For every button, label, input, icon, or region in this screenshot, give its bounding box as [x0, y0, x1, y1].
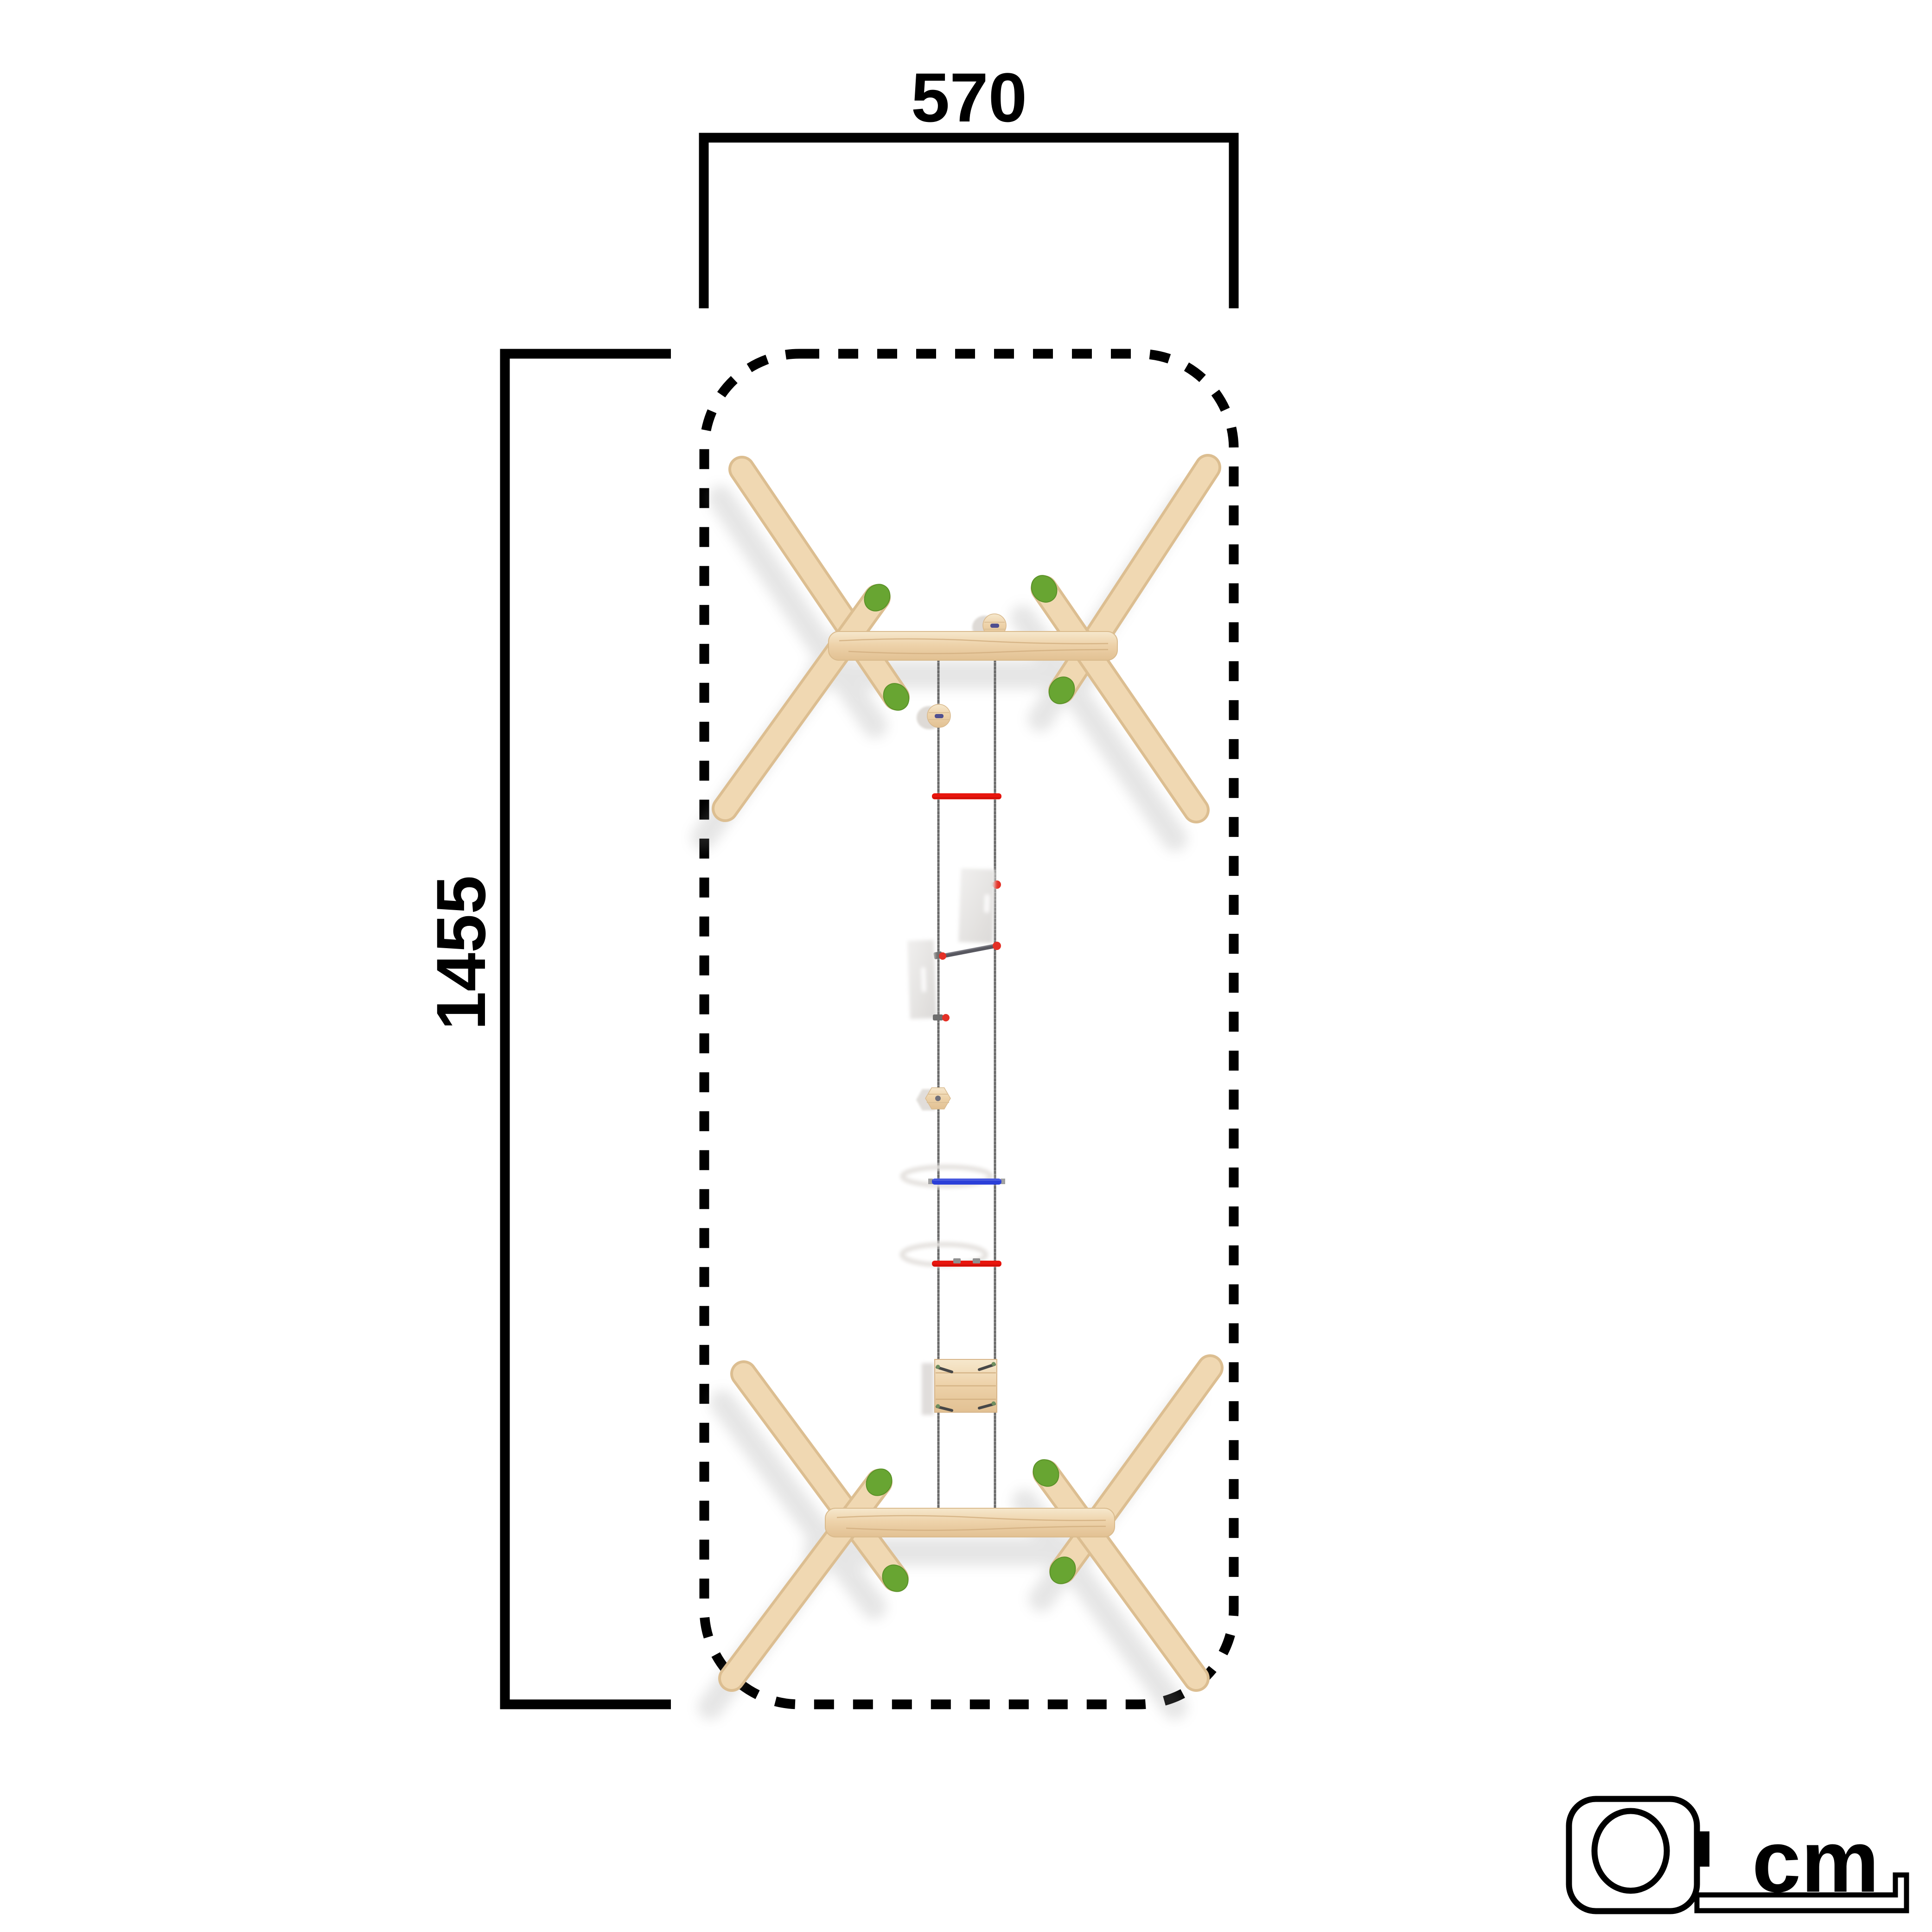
red-rung	[902, 1244, 1001, 1267]
rung-clip	[973, 1258, 980, 1263]
rung-clip	[953, 1258, 961, 1263]
red-rung	[904, 791, 1001, 799]
diagonal-bar	[933, 942, 1001, 960]
rope-elements	[902, 614, 1006, 1415]
rope-connector	[935, 1096, 941, 1101]
blue-rung	[903, 1167, 1005, 1186]
width-dimension-label: 570	[911, 58, 1027, 136]
dimension-drawing-page: 570 1455	[0, 0, 1932, 1932]
rope-connector	[990, 624, 999, 628]
rope-connector	[935, 714, 944, 718]
frame-beam	[829, 631, 1117, 660]
unit-label: cm	[1752, 1812, 1880, 1911]
drawing-canvas: 570 1455	[0, 0, 1932, 1932]
wood-step-disc	[917, 704, 950, 729]
frame-beam	[825, 1508, 1115, 1537]
top-dimension-bracket	[704, 138, 1234, 308]
hex-wood-step	[916, 1088, 950, 1110]
panel-shadow	[958, 868, 995, 943]
left-dimension-bracket	[505, 354, 671, 1704]
height-dimension-label: 1455	[422, 875, 500, 1030]
top-wooden-frame	[725, 467, 1208, 810]
left-height-dimension: 1455	[422, 354, 671, 1704]
panel-shadow	[907, 940, 937, 1019]
rope-fastener	[933, 1014, 950, 1021]
top-width-dimension: 570	[704, 58, 1234, 308]
wood-platform	[922, 1359, 997, 1415]
unit-legend: cm	[1569, 1799, 1906, 1911]
